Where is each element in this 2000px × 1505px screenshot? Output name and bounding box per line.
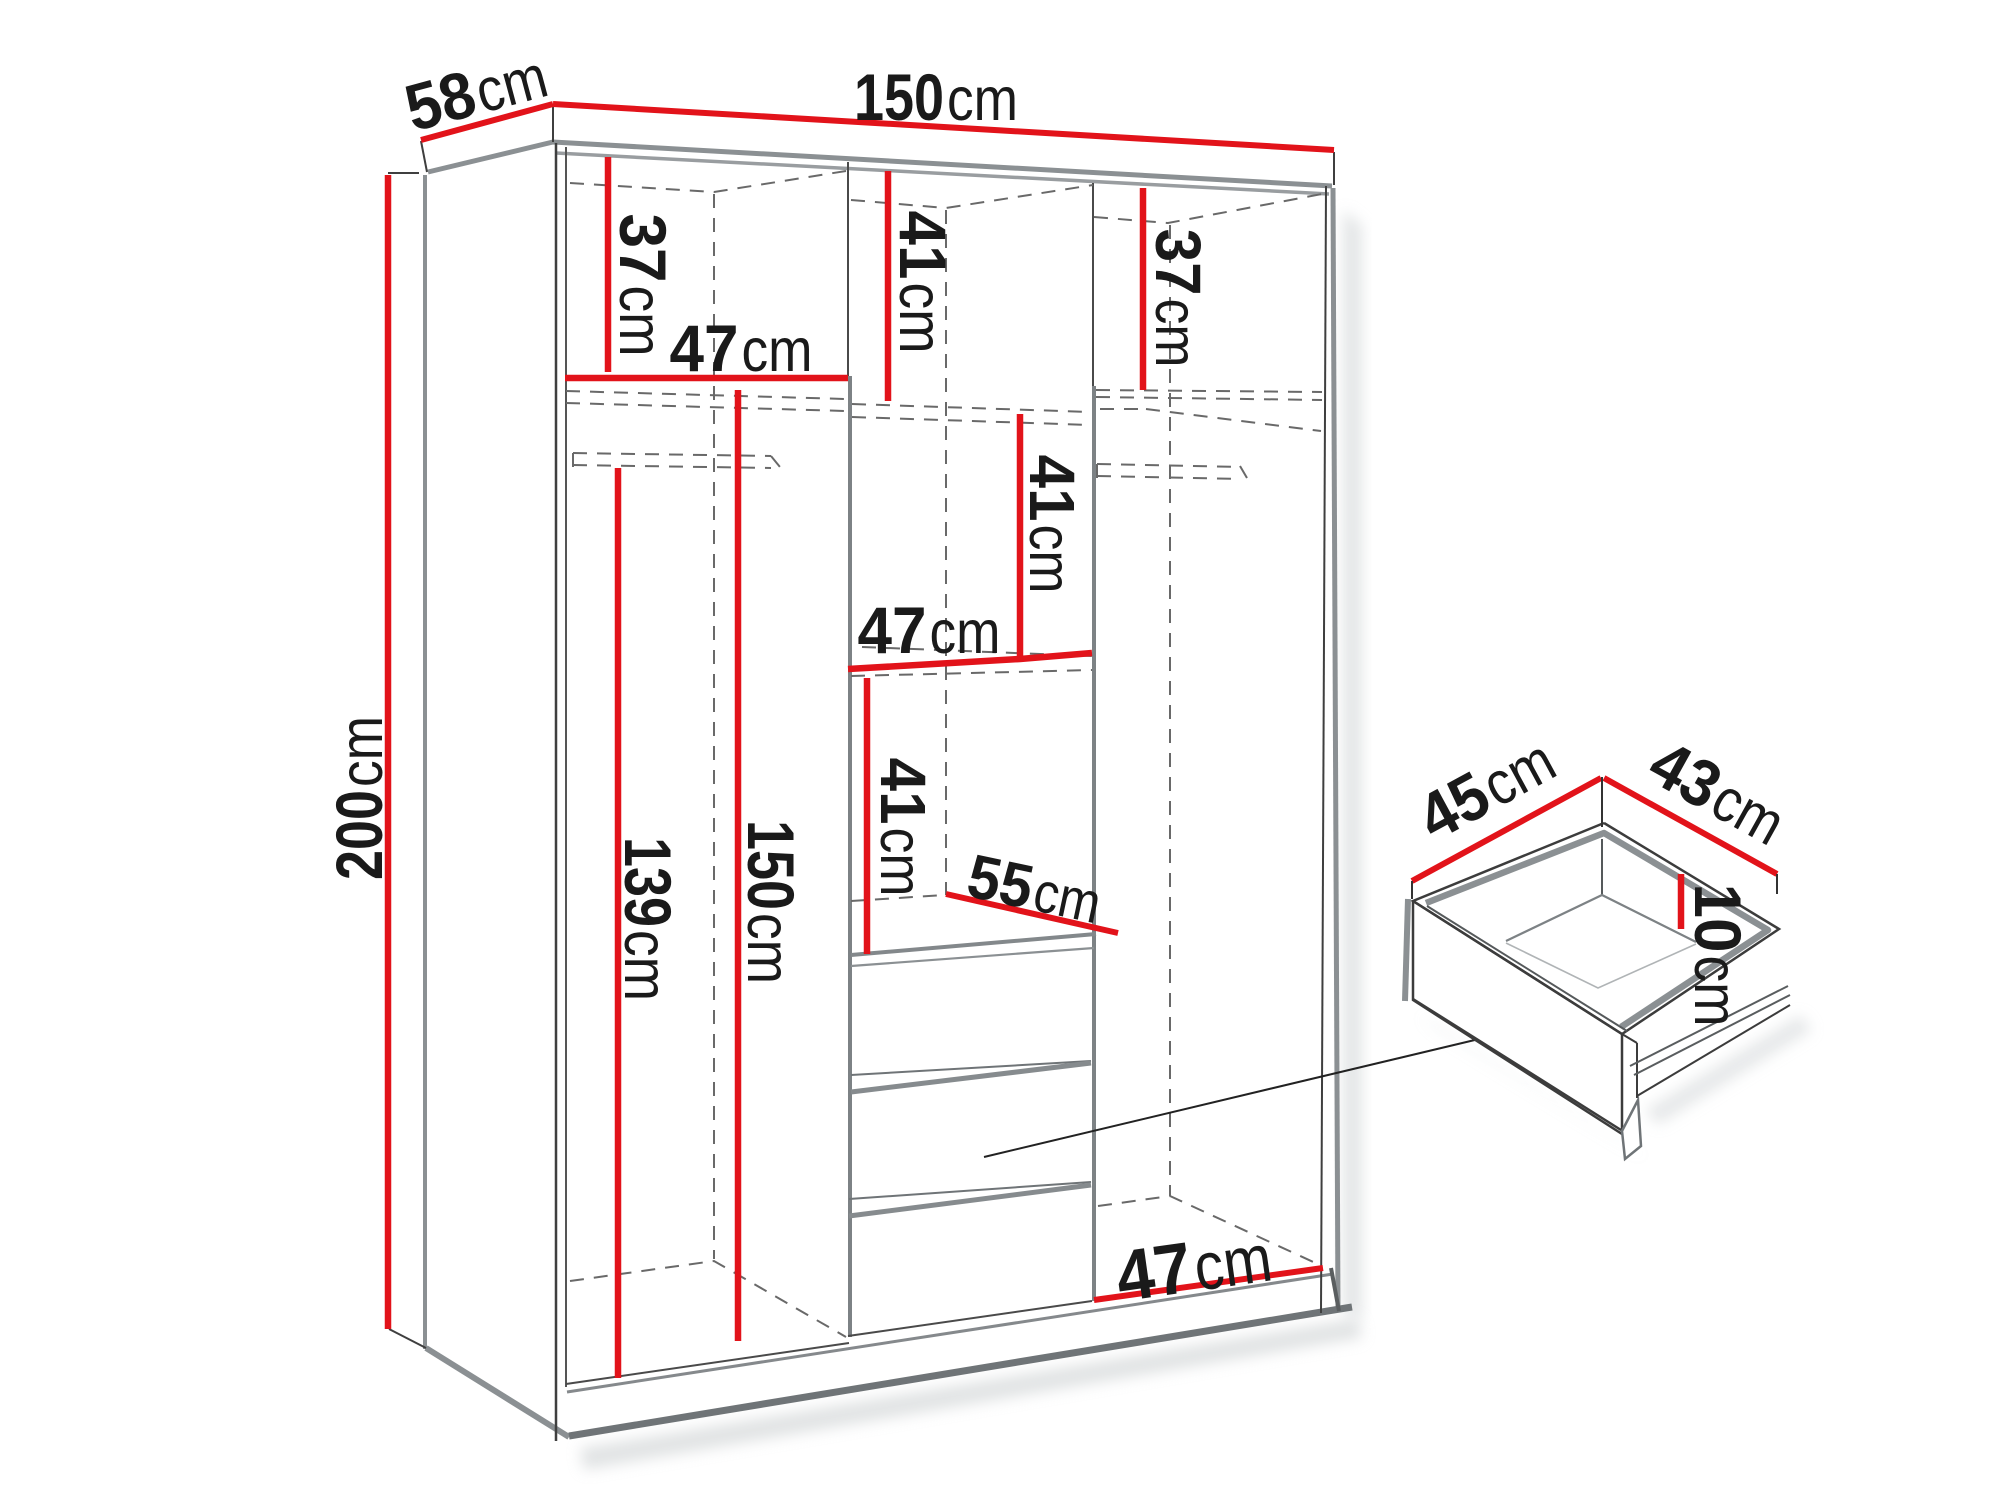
svg-text:47: 47 bbox=[670, 311, 739, 385]
svg-text:150: 150 bbox=[734, 820, 808, 910]
svg-text:37: 37 bbox=[1142, 229, 1214, 296]
svg-text:cm: cm bbox=[1189, 1221, 1276, 1306]
svg-text:cm: cm bbox=[607, 286, 675, 357]
svg-text:cm: cm bbox=[735, 913, 803, 984]
svg-text:41: 41 bbox=[867, 758, 939, 825]
svg-text:cm: cm bbox=[887, 283, 955, 354]
svg-text:cm: cm bbox=[742, 316, 813, 384]
svg-text:cm: cm bbox=[1143, 299, 1209, 368]
svg-text:cm: cm bbox=[1682, 956, 1750, 1027]
svg-text:cm: cm bbox=[327, 716, 395, 787]
svg-text:150: 150 bbox=[854, 60, 944, 134]
svg-text:cm: cm bbox=[1028, 860, 1107, 936]
svg-text:37: 37 bbox=[606, 214, 680, 283]
svg-text:cm: cm bbox=[868, 828, 934, 897]
svg-text:139: 139 bbox=[611, 837, 685, 927]
svg-text:cm: cm bbox=[1017, 525, 1083, 594]
svg-text:41: 41 bbox=[886, 211, 960, 280]
svg-text:cm: cm bbox=[612, 930, 680, 1001]
svg-text:200: 200 bbox=[322, 790, 396, 880]
svg-text:47: 47 bbox=[1111, 1228, 1197, 1318]
svg-text:41: 41 bbox=[1016, 455, 1088, 522]
svg-text:cm: cm bbox=[930, 598, 1001, 666]
svg-text:47: 47 bbox=[858, 593, 927, 667]
svg-text:10: 10 bbox=[1681, 884, 1755, 953]
svg-text:cm: cm bbox=[947, 65, 1018, 133]
